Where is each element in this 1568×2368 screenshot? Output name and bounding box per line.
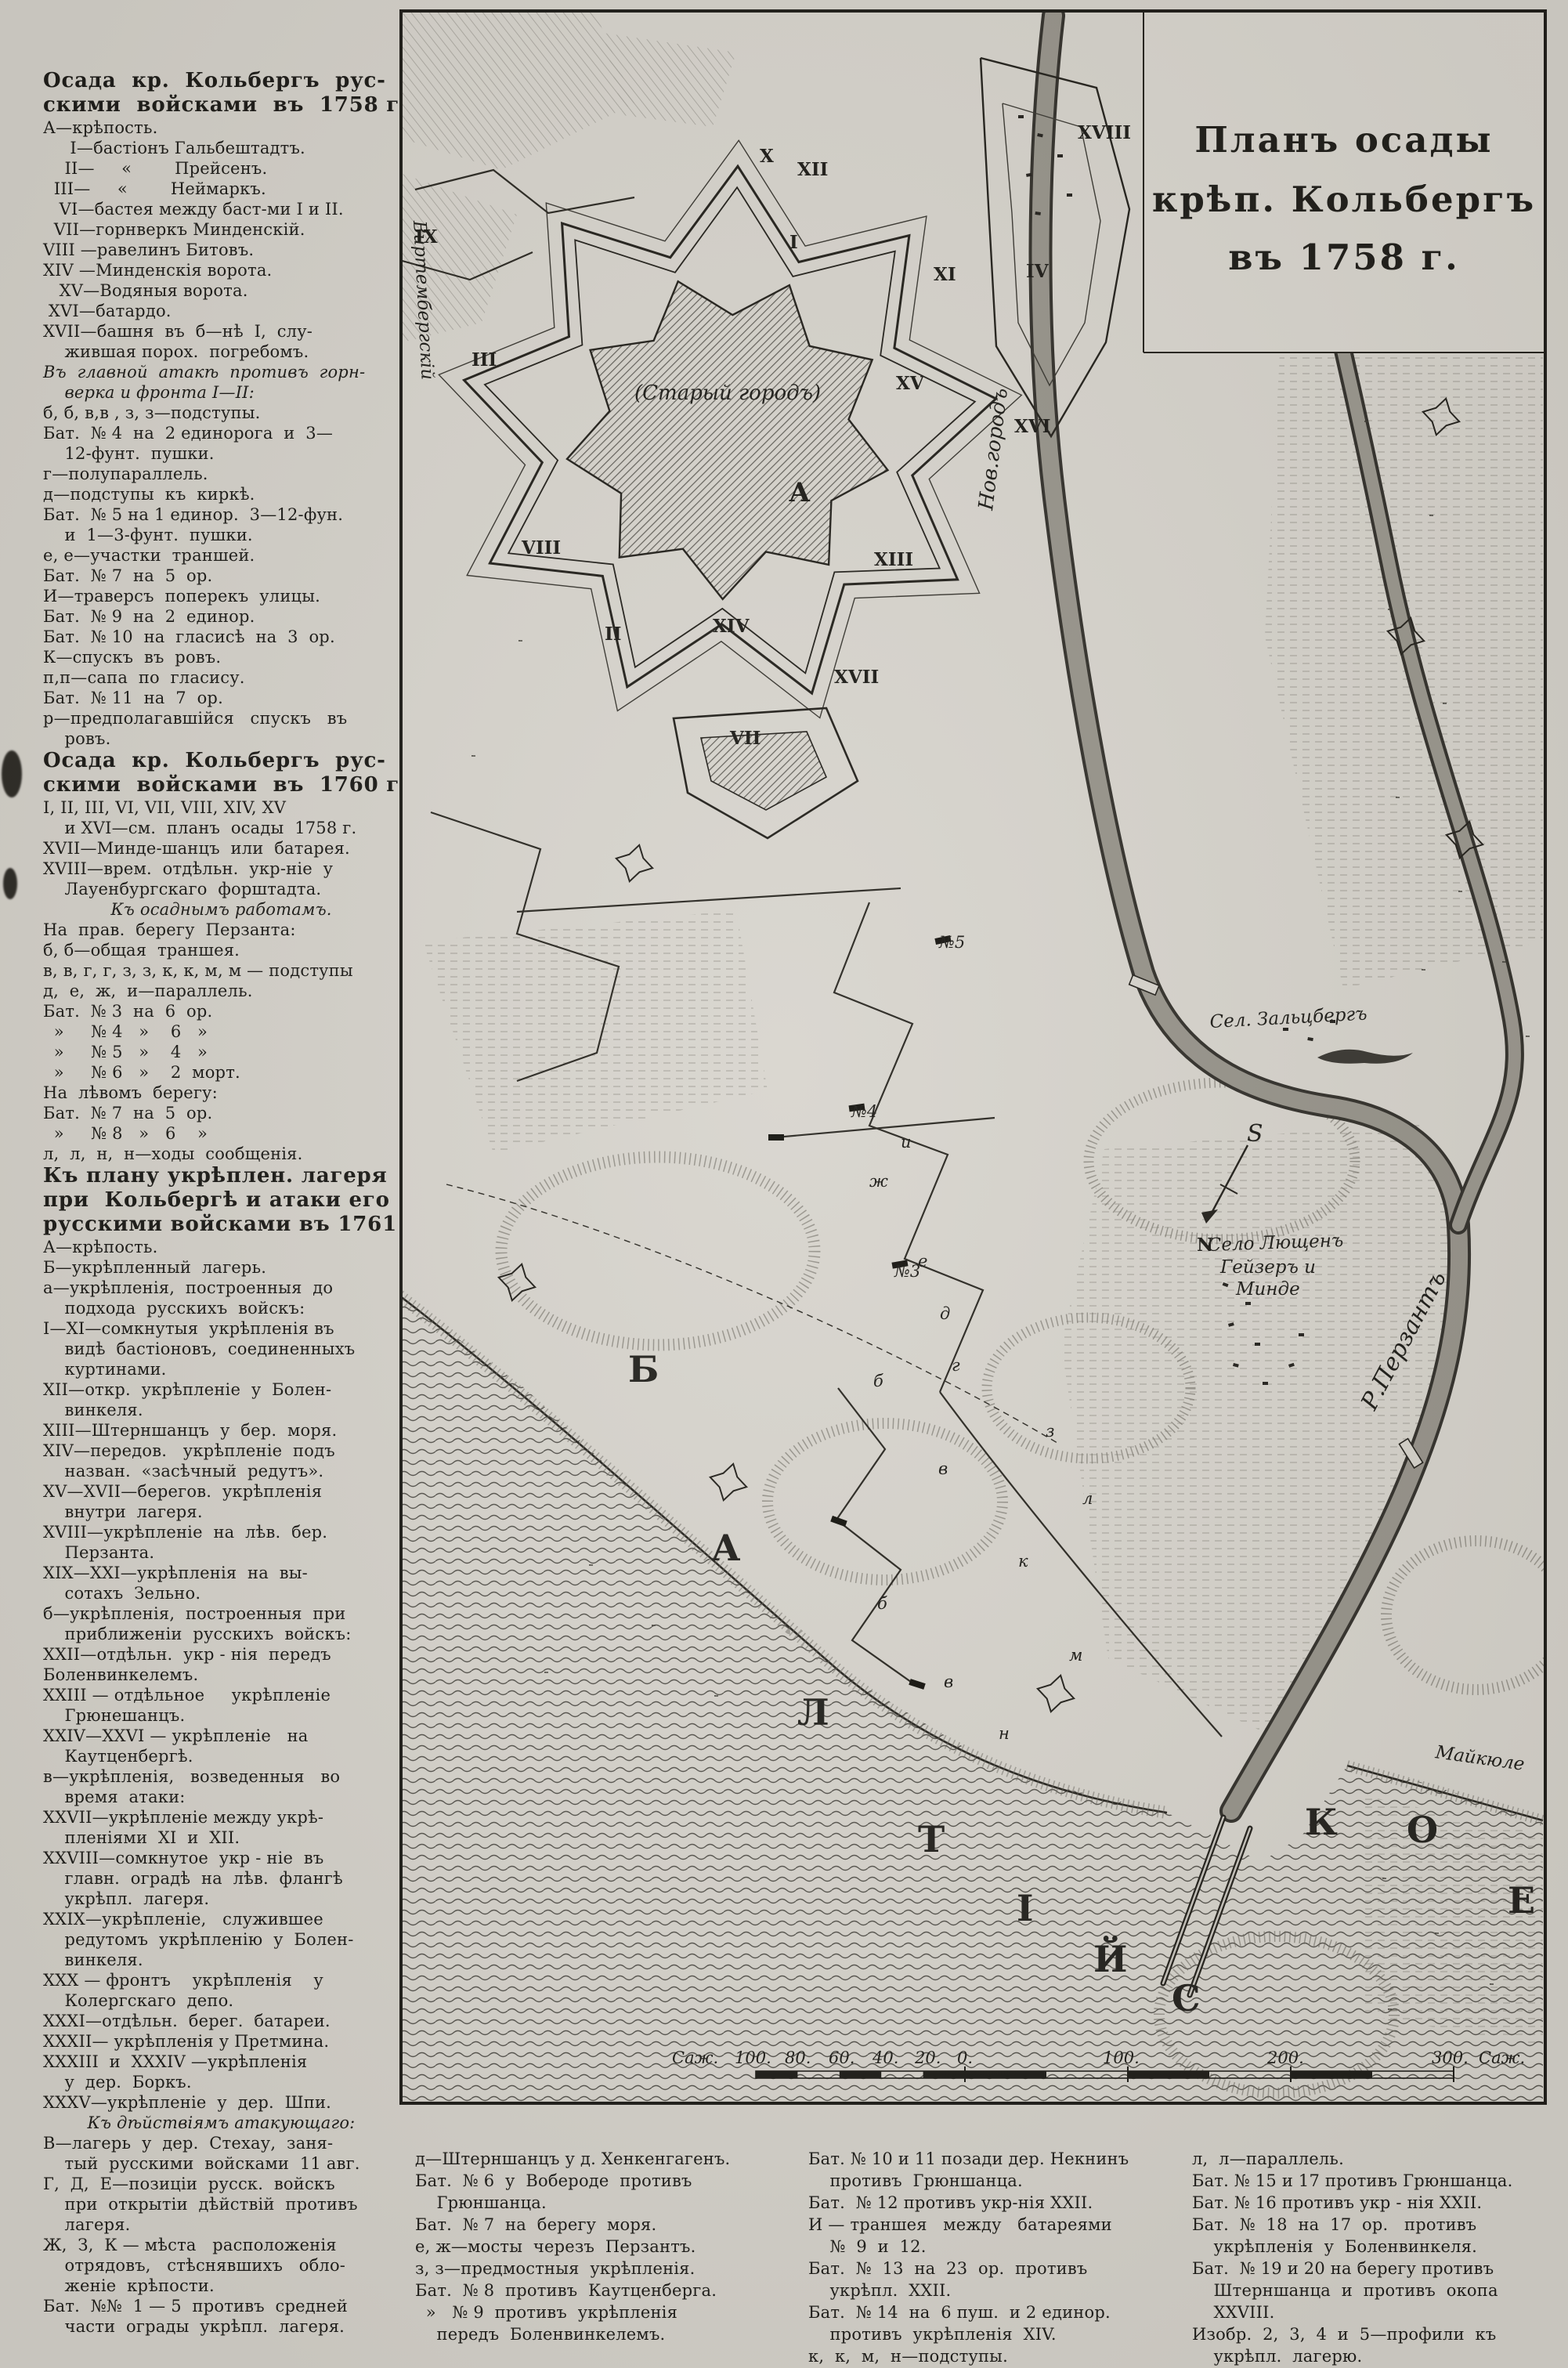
svg-text:XV: XV bbox=[896, 373, 925, 394]
legend-line: жившая порох. погребомъ. bbox=[43, 342, 399, 362]
legend-line: К—спускъ въ ровъ. bbox=[43, 647, 399, 667]
map-title-line1: Планъ осады bbox=[1194, 119, 1493, 161]
legend-line: XXX — фронтъ укрѣпленія у bbox=[43, 1970, 399, 1990]
legend-line: XV—XVII—берегов. укрѣпленія bbox=[43, 1481, 399, 1502]
svg-text:ж: ж bbox=[869, 1172, 888, 1191]
legend-line: л, л—параллель. bbox=[1192, 2148, 1560, 2170]
legend-line: XXVIII—сомкнутое укр - ніе въ bbox=[43, 1848, 399, 1868]
svg-text:и: и bbox=[901, 1133, 912, 1151]
legend-line: Б—укрѣпленный лагерь. bbox=[43, 1257, 399, 1278]
legend-line: Бат. № 12 противъ укр-нія XXII. bbox=[808, 2192, 1180, 2214]
legend-line: верка и фронта I—II: bbox=[43, 382, 399, 403]
legend-line: Грюншанца. bbox=[415, 2192, 791, 2214]
legend-line: куртинами. bbox=[43, 1359, 399, 1379]
legend-line: п,п—сапа по гласису. bbox=[43, 667, 399, 688]
svg-text:100.: 100. bbox=[1103, 2048, 1140, 2067]
legend-line: и XVI—см. планъ осады 1758 г. bbox=[43, 818, 399, 838]
sea-letter: Е bbox=[1508, 1879, 1537, 1922]
village-label-3: Минде bbox=[1235, 1279, 1300, 1300]
legend-line: Бат. № 5 на 1 единор. 3—12-фун. bbox=[43, 504, 399, 525]
legend-line: Бат. № 10 на гласисѣ на 3 ор. bbox=[43, 627, 399, 647]
legend-line: Бат. № 7 на берегу моря. bbox=[415, 2214, 791, 2236]
legend-line: XIX—XXI—укрѣпленія на вы- bbox=[43, 1563, 399, 1583]
legend-line: а—укрѣпленія, построенныя до bbox=[43, 1278, 399, 1298]
legend-line: лагеря. bbox=[43, 2214, 399, 2235]
legend-line: русскими войсками въ 1761 г. bbox=[43, 1213, 399, 1237]
legend-line: VII—горнверкъ Минденскій. bbox=[43, 219, 399, 240]
svg-text:д: д bbox=[940, 1304, 950, 1323]
svg-text:з: з bbox=[1046, 1422, 1054, 1441]
legend-line: Бат. № 10 и 11 позади дер. Некнинъ bbox=[808, 2148, 1180, 2170]
legend-line: XXVII—укрѣпленіе между укрѣ- bbox=[43, 1807, 399, 1828]
legend-line: Изобр. 2, 3, 4 и 5—профили къ bbox=[1192, 2323, 1560, 2345]
legend-line: к, к, м, н—подступы. bbox=[808, 2345, 1180, 2367]
legend-line: XII—откр. укрѣпленіе у Болен- bbox=[43, 1379, 399, 1400]
legend-line: женіе крѣпости. bbox=[43, 2276, 399, 2296]
legend-line: Колергскаго депо. bbox=[43, 1990, 399, 2011]
svg-text:0.: 0. bbox=[957, 2048, 973, 2067]
legend-line: ровъ. bbox=[43, 728, 399, 749]
svg-text:б: б bbox=[873, 1372, 883, 1390]
legend-line: А—крѣпость. bbox=[43, 117, 399, 138]
svg-text:№5: №5 bbox=[938, 933, 965, 952]
legend-line: » № 9 противъ укрѣпленія bbox=[415, 2301, 791, 2323]
legend-line: Грюнешанцъ. bbox=[43, 1705, 399, 1726]
legend-line: Перзанта. bbox=[43, 1542, 399, 1563]
legend-line: редутомъ укрѣпленію у Болен- bbox=[43, 1929, 399, 1950]
legend-line: Бат. № 3 на 6 ор. bbox=[43, 1001, 399, 1021]
legend-column-left: Осада кр. Кольбергъ рус-скими войсками в… bbox=[43, 69, 399, 2337]
svg-text:20.: 20. bbox=[914, 2048, 941, 2067]
svg-text:300.: 300. bbox=[1432, 2048, 1469, 2067]
legend-line: б, б, в,в , з, з—подступы. bbox=[43, 403, 399, 423]
legend-line: XXIII — отдѣльное укрѣпленіе bbox=[43, 1685, 399, 1705]
legend-column-3: Бат. № 10 и 11 позади дер. Некнинъ проти… bbox=[808, 2148, 1180, 2367]
legend-line: отрядовъ, стѣснявшихъ обло- bbox=[43, 2255, 399, 2276]
legend-line: Бат. № 15 и 17 противъ Грюншанца. bbox=[1192, 2170, 1560, 2192]
legend-line: главн. оградѣ на лѣв. флангѣ bbox=[43, 1868, 399, 1889]
legend-column-2: д—Штерншанцъ у д. Хенкенгагенъ.Бат. № 6 … bbox=[415, 2148, 791, 2345]
legend-line: XIII—Штерншанцъ у бер. моря. bbox=[43, 1420, 399, 1441]
svg-text:XIII: XIII bbox=[874, 549, 913, 570]
legend-line: скими войсками въ 1760 г. bbox=[43, 773, 399, 797]
legend-line: приближеніи русскихъ войскъ: bbox=[43, 1624, 399, 1644]
legend-line: Бат. № 13 на 23 ор. противъ bbox=[808, 2258, 1180, 2279]
legend-line: при Кольбергѣ и атаки его bbox=[43, 1188, 399, 1213]
legend-line: XVI—батардо. bbox=[43, 301, 399, 321]
sea-letter: Л bbox=[797, 1691, 831, 1734]
legend-line: 12-фунт. пушки. bbox=[43, 443, 399, 464]
legend-line: г—полупараллель. bbox=[43, 464, 399, 484]
legend-line: Въ главной атакѣ противъ горн- bbox=[43, 362, 399, 382]
svg-text:60.: 60. bbox=[829, 2048, 854, 2067]
legend-line: Ж, З, К — мѣста расположенія bbox=[43, 2235, 399, 2255]
legend-line: I—XI—сомкнутыя укрѣпленія въ bbox=[43, 1318, 399, 1339]
legend-line: XXXII— укрѣпленія у Претмина. bbox=[43, 2031, 399, 2052]
siege-map: Б А Л Т І Й С К О Е (Старый городъ) А Но… bbox=[399, 9, 1547, 2105]
legend-line: XXIV—XXVI — укрѣпленіе на bbox=[43, 1726, 399, 1746]
legend-line: I, II, III, VI, VII, VIII, XIV, XV bbox=[43, 797, 399, 818]
legend-line: Бат. № 9 на 2 единор. bbox=[43, 606, 399, 627]
legend-line: Бат. № 18 на 17 ор. противъ bbox=[1192, 2214, 1560, 2236]
svg-text:I: I bbox=[789, 232, 798, 253]
legend-line: На прав. берегу Перзанта: bbox=[43, 920, 399, 940]
legend-line: противъ Грюншанца. bbox=[808, 2170, 1180, 2192]
legend-line: укрѣпл. лагеря. bbox=[43, 1889, 399, 1909]
svg-text:III: III bbox=[471, 349, 497, 371]
legend-column-4: л, л—параллель.Бат. № 15 и 17 противъ Гр… bbox=[1192, 2148, 1560, 2367]
svg-text:Саж.: Саж. bbox=[1479, 2048, 1525, 2067]
sea-letter: С bbox=[1172, 1977, 1202, 2019]
legend-line: Къ плану укрѣплен. лагеря bbox=[43, 1164, 399, 1188]
legend-line: А—крѣпость. bbox=[43, 1237, 399, 1257]
legend-line: укрѣпл. лагерю. bbox=[1192, 2345, 1560, 2367]
legend-line: XVII—Минде-шанцъ или батарея. bbox=[43, 838, 399, 859]
svg-text:в: в bbox=[944, 1672, 953, 1691]
svg-text:л: л bbox=[1082, 1489, 1093, 1508]
title-cartouche: Планъ осады крѣп. Кольбергъ въ 1758 г. bbox=[1143, 11, 1545, 352]
legend-line: л, л, н, н—ходы сообщенія. bbox=[43, 1144, 399, 1164]
map-title-line3: въ 1758 г. bbox=[1228, 237, 1460, 278]
legend-line: Каутценбергѣ. bbox=[43, 1746, 399, 1766]
legend-line: тый русскими войсками 11 авг. bbox=[43, 2153, 399, 2174]
svg-text:к: к bbox=[1018, 1552, 1028, 1571]
svg-text:б: б bbox=[877, 1594, 887, 1613]
map-title-line2: крѣп. Кольбергъ bbox=[1152, 179, 1536, 220]
legend-line: сотахъ Зельно. bbox=[43, 1583, 399, 1603]
ink-blot bbox=[3, 868, 17, 899]
svg-text:40.: 40. bbox=[872, 2048, 898, 2067]
svg-text:г: г bbox=[952, 1356, 960, 1375]
legend-line: Штерншанца и противъ окопа bbox=[1192, 2279, 1560, 2301]
legend-line: Къ осаднымъ работамъ. bbox=[43, 899, 399, 920]
svg-text:II: II bbox=[605, 624, 622, 645]
legend-line: пленіями XI и XII. bbox=[43, 1828, 399, 1848]
sea-letter: К bbox=[1305, 1801, 1339, 1843]
legend-line: б, б—общая траншея. bbox=[43, 940, 399, 960]
svg-text:в: в bbox=[938, 1459, 948, 1478]
sea-letter: О bbox=[1407, 1809, 1440, 1851]
legend-line: Бат. № 19 и 20 на берегу противъ bbox=[1192, 2258, 1560, 2279]
legend-line: » № 8 » 6 » bbox=[43, 1123, 399, 1144]
svg-text:Саж.: Саж. bbox=[672, 2048, 718, 2067]
legend-line: у дер. Боркъ. bbox=[43, 2072, 399, 2092]
svg-text:IV: IV bbox=[1026, 261, 1050, 282]
sea-letter: Й bbox=[1093, 1935, 1129, 1980]
compass-south: S bbox=[1247, 1120, 1263, 1148]
svg-text:XII: XII bbox=[797, 159, 828, 180]
legend-line: I—бастіонъ Гальбештадтъ. bbox=[43, 138, 399, 158]
legend-line: XVII—башня въ б—нѣ I, слу- bbox=[43, 321, 399, 342]
legend-line: в—укрѣпленія, возведенныя во bbox=[43, 1766, 399, 1787]
legend-line: II— « Прейсенъ. bbox=[43, 158, 399, 179]
svg-text:VII: VII bbox=[729, 728, 761, 749]
legend-line: Бат. №№ 1 — 5 противъ средней bbox=[43, 2296, 399, 2316]
legend-line: XXIX—укрѣпленіе, служившее bbox=[43, 1909, 399, 1929]
legend-line: винкеля. bbox=[43, 1400, 399, 1420]
svg-text:80.: 80. bbox=[785, 2048, 811, 2067]
legend-line: Осада кр. Кольбергъ рус- bbox=[43, 749, 399, 773]
svg-text:100.: 100. bbox=[735, 2048, 771, 2067]
legend-line: винкеля. bbox=[43, 1950, 399, 1970]
legend-line: В—лагерь у дер. Стехау, заня- bbox=[43, 2133, 399, 2153]
legend-line: р—предполагавшійся спускъ въ bbox=[43, 708, 399, 728]
legend-line: » № 4 » 6 » bbox=[43, 1021, 399, 1042]
svg-text:VIII: VIII bbox=[521, 537, 561, 559]
legend-line: XV—Водяныя ворота. bbox=[43, 280, 399, 301]
svg-text:XVII: XVII bbox=[834, 667, 879, 688]
legend-line: Осада кр. Кольбергъ рус- bbox=[43, 69, 399, 93]
legend-line: видѣ бастіоновъ, соединенныхъ bbox=[43, 1339, 399, 1359]
svg-text:XIV: XIV bbox=[713, 616, 750, 637]
legend-line: XVIII—врем. отдѣльн. укр-ніе у bbox=[43, 859, 399, 879]
legend-line: части ограды укрѣпл. лагеря. bbox=[43, 2316, 399, 2337]
svg-text:200.: 200. bbox=[1266, 2048, 1304, 2067]
ink-blot bbox=[2, 750, 22, 797]
village-label-2: Гейзеръ и bbox=[1219, 1257, 1316, 1278]
legend-line: На лѣвомъ берегу: bbox=[43, 1083, 399, 1103]
legend-line: укрѣпленія у Боленвинкеля. bbox=[1192, 2236, 1560, 2258]
legend-line: при открытіи дѣйствій противъ bbox=[43, 2194, 399, 2214]
legend-line: » № 6 » 2 морт. bbox=[43, 1062, 399, 1083]
legend-line: XXII—отдѣльн. укр - нія передъ bbox=[43, 1644, 399, 1665]
legend-line: XVIII—укрѣпленіе на лѣв. бер. bbox=[43, 1522, 399, 1542]
legend-line: Г, Д, Е—позиціи русск. войскъ bbox=[43, 2174, 399, 2194]
legend-line: XIV —Минденскія ворота. bbox=[43, 260, 399, 280]
legend-line: в, в, г, г, з, з, к, к, м, м — подступы bbox=[43, 960, 399, 981]
svg-text:н: н bbox=[999, 1724, 1010, 1743]
legend-line: Бат. № 11 на 7 ор. bbox=[43, 688, 399, 708]
legend-line: внутри лагеря. bbox=[43, 1502, 399, 1522]
legend-line: VI—бастея между баст-ми I и II. bbox=[43, 199, 399, 219]
legend-line: Бат. № 4 на 2 единорога и 3— bbox=[43, 423, 399, 443]
svg-text:XVI: XVI bbox=[1014, 416, 1050, 437]
legend-line: з, з—предмостныя укрѣпленія. bbox=[415, 2258, 791, 2279]
legend-line: подхода русскихъ войскъ: bbox=[43, 1298, 399, 1318]
svg-text:XI: XI bbox=[934, 264, 956, 285]
legend-line: назван. «засѣчный редутъ». bbox=[43, 1461, 399, 1481]
fortress-letter-a: А bbox=[789, 477, 811, 508]
sea-letter: Б bbox=[628, 1348, 660, 1390]
svg-text:IX: IX bbox=[415, 226, 438, 248]
legend-line: III— « Неймаркъ. bbox=[43, 179, 399, 199]
legend-line: скими войсками въ 1758 г. bbox=[43, 93, 399, 117]
svg-text:XVIII: XVIII bbox=[1078, 122, 1131, 143]
legend-line: передъ Боленвинкелемъ. bbox=[415, 2323, 791, 2345]
legend-line: Лауенбургскаго форштадта. bbox=[43, 879, 399, 899]
legend-line: д—Штерншанцъ у д. Хенкенгагенъ. bbox=[415, 2148, 791, 2170]
legend-line: XXXV—укрѣпленіе у дер. Шпи. bbox=[43, 2092, 399, 2113]
svg-text:м: м bbox=[1069, 1646, 1082, 1665]
sea-letter: А bbox=[711, 1527, 742, 1569]
legend-line: д—подступы къ киркѣ. bbox=[43, 484, 399, 504]
legend-line: Боленвинкелемъ. bbox=[43, 1665, 399, 1685]
old-town-label: (Старый городъ) bbox=[634, 381, 821, 405]
legend-line: XIV—передов. укрѣпленіе подъ bbox=[43, 1441, 399, 1461]
svg-text:№3: №3 bbox=[894, 1262, 920, 1281]
svg-text:X: X bbox=[760, 146, 774, 167]
legend-line: Бат. № 6 у Вобероде противъ bbox=[415, 2170, 791, 2192]
sea-letter: Т bbox=[918, 1818, 946, 1860]
legend-line: е, ж—мосты черезъ Перзантъ. bbox=[415, 2236, 791, 2258]
legend-line: XXXIII и XXXIV —укрѣпленія bbox=[43, 2052, 399, 2072]
legend-line: Къ дѣйствіямъ атакующаго: bbox=[43, 2113, 399, 2133]
legend-line: VIII —равелинъ Битовъ. bbox=[43, 240, 399, 260]
legend-line: XXVIII. bbox=[1192, 2301, 1560, 2323]
legend-line: время атаки: bbox=[43, 1787, 399, 1807]
scanned-atlas-page: Осада кр. Кольбергъ рус-скими войсками в… bbox=[0, 0, 1568, 2368]
legend-line: Бат. № 7 на 5 ор. bbox=[43, 1103, 399, 1123]
legend-line: Бат. № 8 противъ Каутценберга. bbox=[415, 2279, 791, 2301]
legend-line: и 1—3-фунт. пушки. bbox=[43, 525, 399, 545]
legend-line: № 9 и 12. bbox=[808, 2236, 1180, 2258]
legend-line: Бат. № 7 на 5 ор. bbox=[43, 566, 399, 586]
legend-line: д, е, ж, и—параллель. bbox=[43, 981, 399, 1001]
legend-line: » № 5 » 4 » bbox=[43, 1042, 399, 1062]
legend-line: И — траншея между батареями bbox=[808, 2214, 1180, 2236]
legend-line: XXXI—отдѣльн. берег. батареи. bbox=[43, 2011, 399, 2031]
svg-text:№4: №4 bbox=[851, 1102, 877, 1121]
legend-line: е, е—участки траншей. bbox=[43, 545, 399, 566]
compass-north: N bbox=[1197, 1235, 1213, 1256]
legend-line: б—укрѣпленія, построенныя при bbox=[43, 1603, 399, 1624]
legend-line: противъ укрѣпленія XIV. bbox=[808, 2323, 1180, 2345]
legend-line: Бат. № 16 противъ укр - нія XXII. bbox=[1192, 2192, 1560, 2214]
sea-letter: І bbox=[1017, 1887, 1035, 1929]
legend-line: И—траверсъ поперекъ улицы. bbox=[43, 586, 399, 606]
legend-line: Бат. № 14 на 6 пуш. и 2 единор. bbox=[808, 2301, 1180, 2323]
legend-line: укрѣпл. XXII. bbox=[808, 2279, 1180, 2301]
